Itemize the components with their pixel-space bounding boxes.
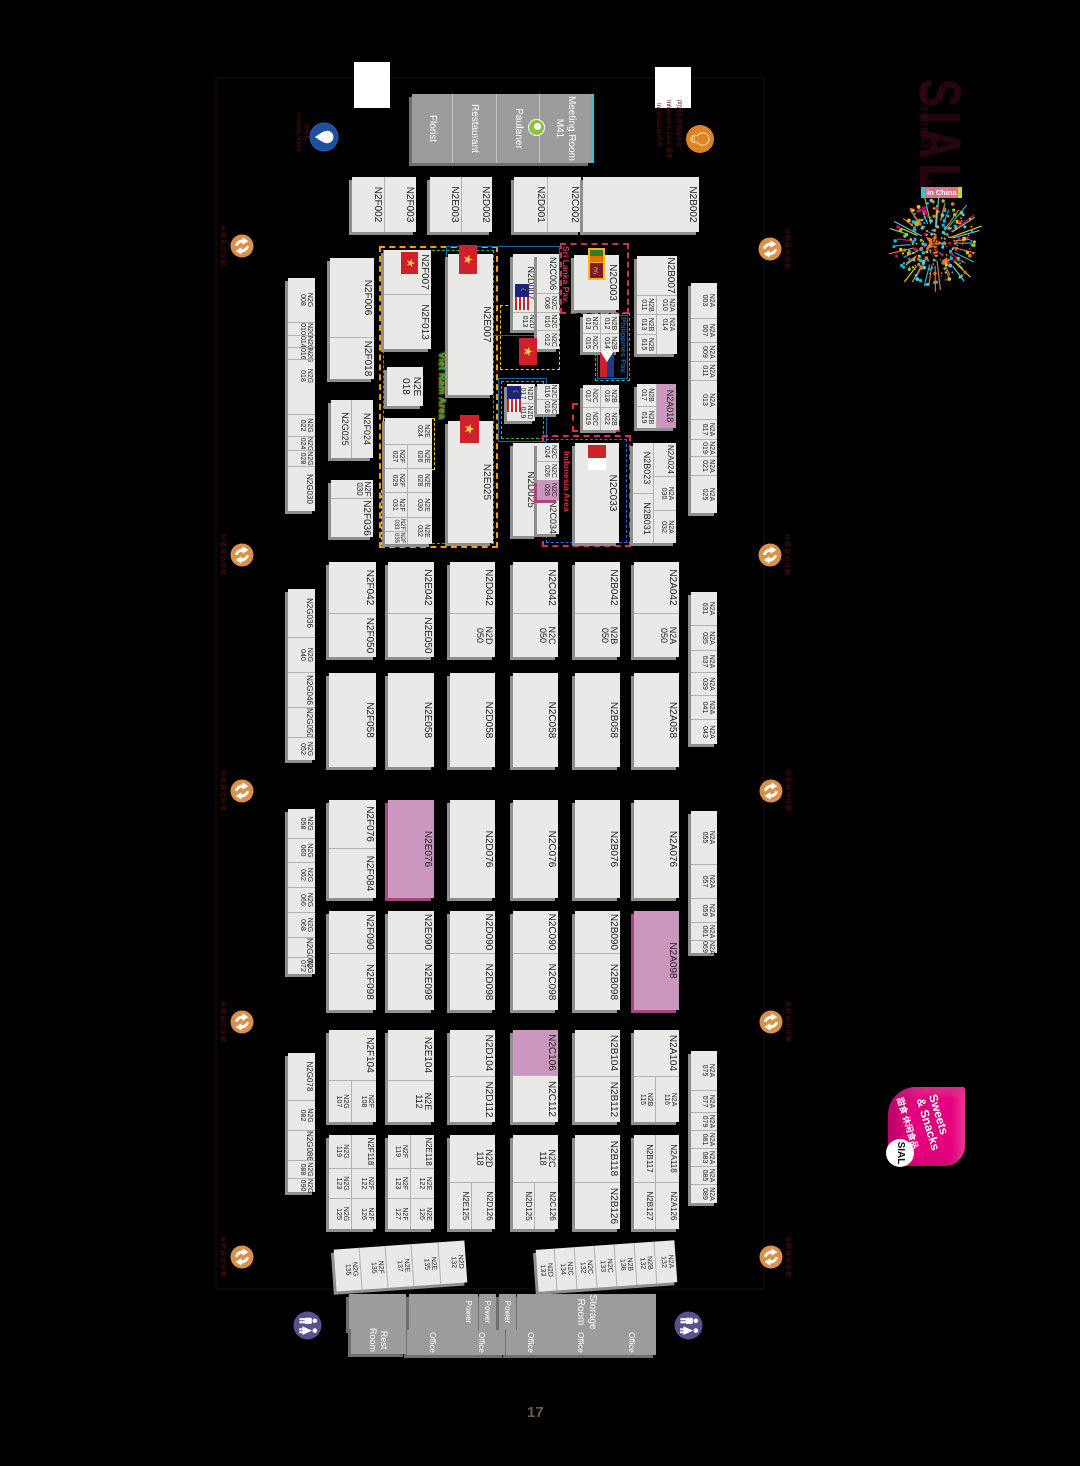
- svg-text:SIAL: SIAL: [930, 238, 940, 259]
